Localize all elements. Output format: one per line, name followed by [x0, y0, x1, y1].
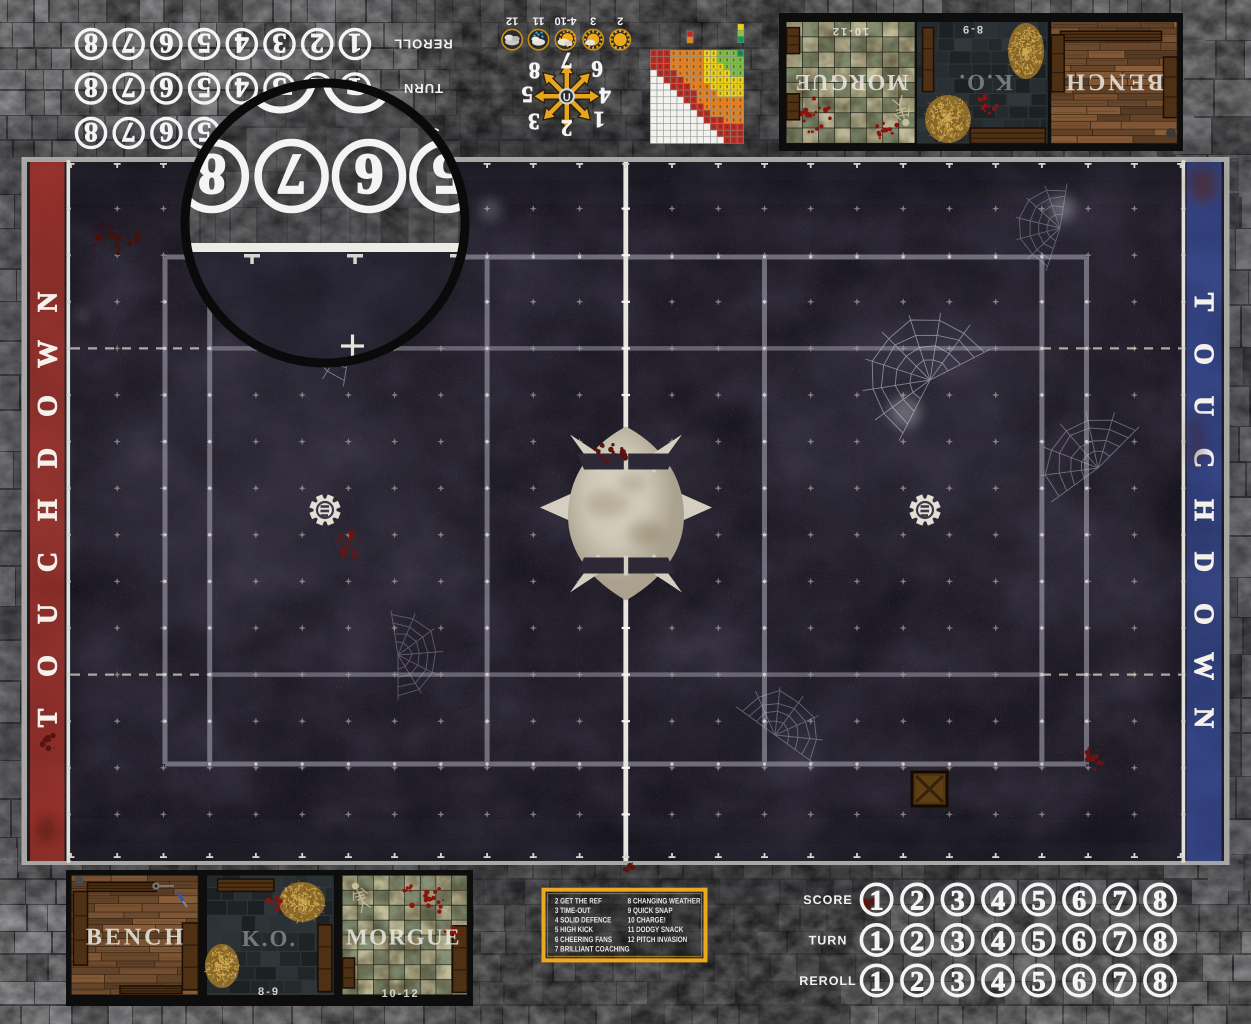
svg-text:6: 6: [1072, 886, 1086, 917]
svg-text:T: T: [1188, 293, 1219, 312]
svg-text:6: 6: [159, 116, 173, 147]
svg-text:7: 7: [1113, 926, 1127, 957]
svg-text:3: 3: [590, 15, 596, 27]
svg-text:7: 7: [122, 116, 136, 147]
svg-text:3 TIME-OUT: 3 TIME-OUT: [555, 906, 591, 915]
svg-text:2: 2: [910, 967, 924, 998]
svg-text:4 SOLID DEFENCE: 4 SOLID DEFENCE: [555, 916, 611, 925]
svg-text:5: 5: [197, 27, 211, 58]
svg-text:REROLL: REROLL: [799, 974, 856, 988]
svg-text:TURN: TURN: [809, 934, 848, 948]
svg-text:O: O: [1188, 343, 1219, 365]
svg-text:8-9: 8-9: [258, 986, 280, 998]
svg-text:1: 1: [870, 967, 884, 998]
svg-text:H: H: [33, 499, 64, 521]
svg-text:7: 7: [277, 142, 306, 207]
svg-text:6: 6: [591, 57, 603, 82]
svg-text:3: 3: [951, 886, 965, 917]
svg-text:4: 4: [235, 72, 249, 103]
svg-text:1: 1: [348, 27, 362, 58]
svg-text:10 CHARGE!: 10 CHARGE!: [628, 916, 666, 925]
svg-text:K.O.: K.O.: [242, 926, 297, 951]
svg-text:4: 4: [599, 83, 611, 108]
svg-text:3: 3: [273, 27, 287, 58]
svg-text:10-12: 10-12: [381, 988, 419, 1000]
svg-text:6: 6: [1072, 967, 1086, 998]
svg-text:12: 12: [506, 15, 518, 27]
svg-text:TURN: TURN: [403, 81, 443, 96]
svg-text:MORGUE: MORGUE: [346, 925, 461, 950]
svg-text:MORGUE: MORGUE: [793, 70, 908, 95]
svg-text:T: T: [33, 708, 64, 727]
svg-text:6: 6: [159, 72, 173, 103]
svg-text:9 QUICK SNAP: 9 QUICK SNAP: [628, 906, 673, 915]
svg-text:8 CHANGING WEATHER: 8 CHANGING WEATHER: [628, 897, 701, 906]
svg-text:10-12: 10-12: [831, 25, 869, 37]
svg-text:6 CHEERING FANS: 6 CHEERING FANS: [555, 935, 612, 944]
svg-text:8: 8: [1153, 926, 1167, 957]
svg-text:7: 7: [1113, 886, 1127, 917]
svg-text:8: 8: [84, 72, 98, 103]
svg-text:2: 2: [561, 116, 573, 141]
svg-text:W: W: [1188, 652, 1219, 680]
svg-text:C: C: [33, 552, 64, 572]
svg-text:O: O: [33, 655, 64, 677]
svg-text:3: 3: [951, 926, 965, 957]
svg-text:7: 7: [561, 48, 573, 73]
svg-text:2: 2: [617, 15, 623, 27]
svg-text:2: 2: [310, 27, 324, 58]
svg-text:8: 8: [529, 58, 541, 83]
svg-text:3: 3: [528, 109, 540, 134]
svg-text:2: 2: [910, 926, 924, 957]
svg-text:8: 8: [1153, 886, 1167, 917]
svg-text:5: 5: [197, 72, 211, 103]
svg-text:BENCH: BENCH: [1063, 68, 1163, 94]
svg-text:N: N: [33, 292, 64, 312]
svg-text:N: N: [1188, 708, 1219, 728]
svg-text:5: 5: [1032, 926, 1046, 957]
svg-text:6: 6: [1072, 926, 1086, 957]
svg-text:6: 6: [355, 142, 384, 207]
svg-text:O: O: [33, 395, 64, 417]
svg-text:3: 3: [951, 967, 965, 998]
svg-text:1: 1: [870, 926, 884, 957]
svg-text:K.O.: K.O.: [957, 70, 1012, 95]
svg-text:D: D: [1188, 552, 1219, 572]
svg-text:4: 4: [991, 886, 1005, 917]
svg-text:8: 8: [84, 27, 98, 58]
svg-text:1: 1: [870, 886, 884, 917]
svg-text:8: 8: [84, 116, 98, 147]
svg-text:2: 2: [910, 886, 924, 917]
svg-text:4: 4: [991, 967, 1005, 998]
svg-text:D: D: [33, 448, 64, 468]
svg-text:5: 5: [1032, 886, 1046, 917]
svg-text:5 HIGH KICK: 5 HIGH KICK: [555, 925, 593, 934]
svg-text:6: 6: [159, 27, 173, 58]
svg-text:7 BRILLIANT COACHING: 7 BRILLIANT COACHING: [555, 944, 630, 953]
svg-text:7: 7: [122, 72, 136, 103]
svg-text:H: H: [1188, 499, 1219, 521]
svg-text:4: 4: [991, 926, 1005, 957]
svg-text:O: O: [1188, 603, 1219, 625]
svg-text:U: U: [1188, 396, 1219, 416]
svg-text:5: 5: [522, 82, 534, 107]
svg-text:W: W: [33, 340, 64, 368]
svg-text:5: 5: [1032, 967, 1046, 998]
svg-text:4-10: 4-10: [554, 15, 576, 27]
svg-text:8-9: 8-9: [961, 23, 983, 35]
svg-text:4: 4: [235, 27, 249, 58]
svg-text:1: 1: [593, 107, 605, 132]
svg-text:BENCH: BENCH: [86, 924, 186, 950]
svg-text:11: 11: [533, 15, 545, 27]
svg-text:SCORE: SCORE: [803, 893, 852, 907]
svg-text:U: U: [33, 604, 64, 624]
svg-text:2 GET THE REF: 2 GET THE REF: [555, 897, 602, 906]
svg-text:7: 7: [1113, 967, 1127, 998]
svg-text:12 PITCH INVASION: 12 PITCH INVASION: [628, 935, 688, 944]
svg-text:11 DODGY SNACK: 11 DODGY SNACK: [628, 925, 684, 934]
svg-text:8: 8: [1153, 967, 1167, 998]
svg-text:7: 7: [122, 27, 136, 58]
svg-text:REROLL: REROLL: [393, 37, 452, 52]
